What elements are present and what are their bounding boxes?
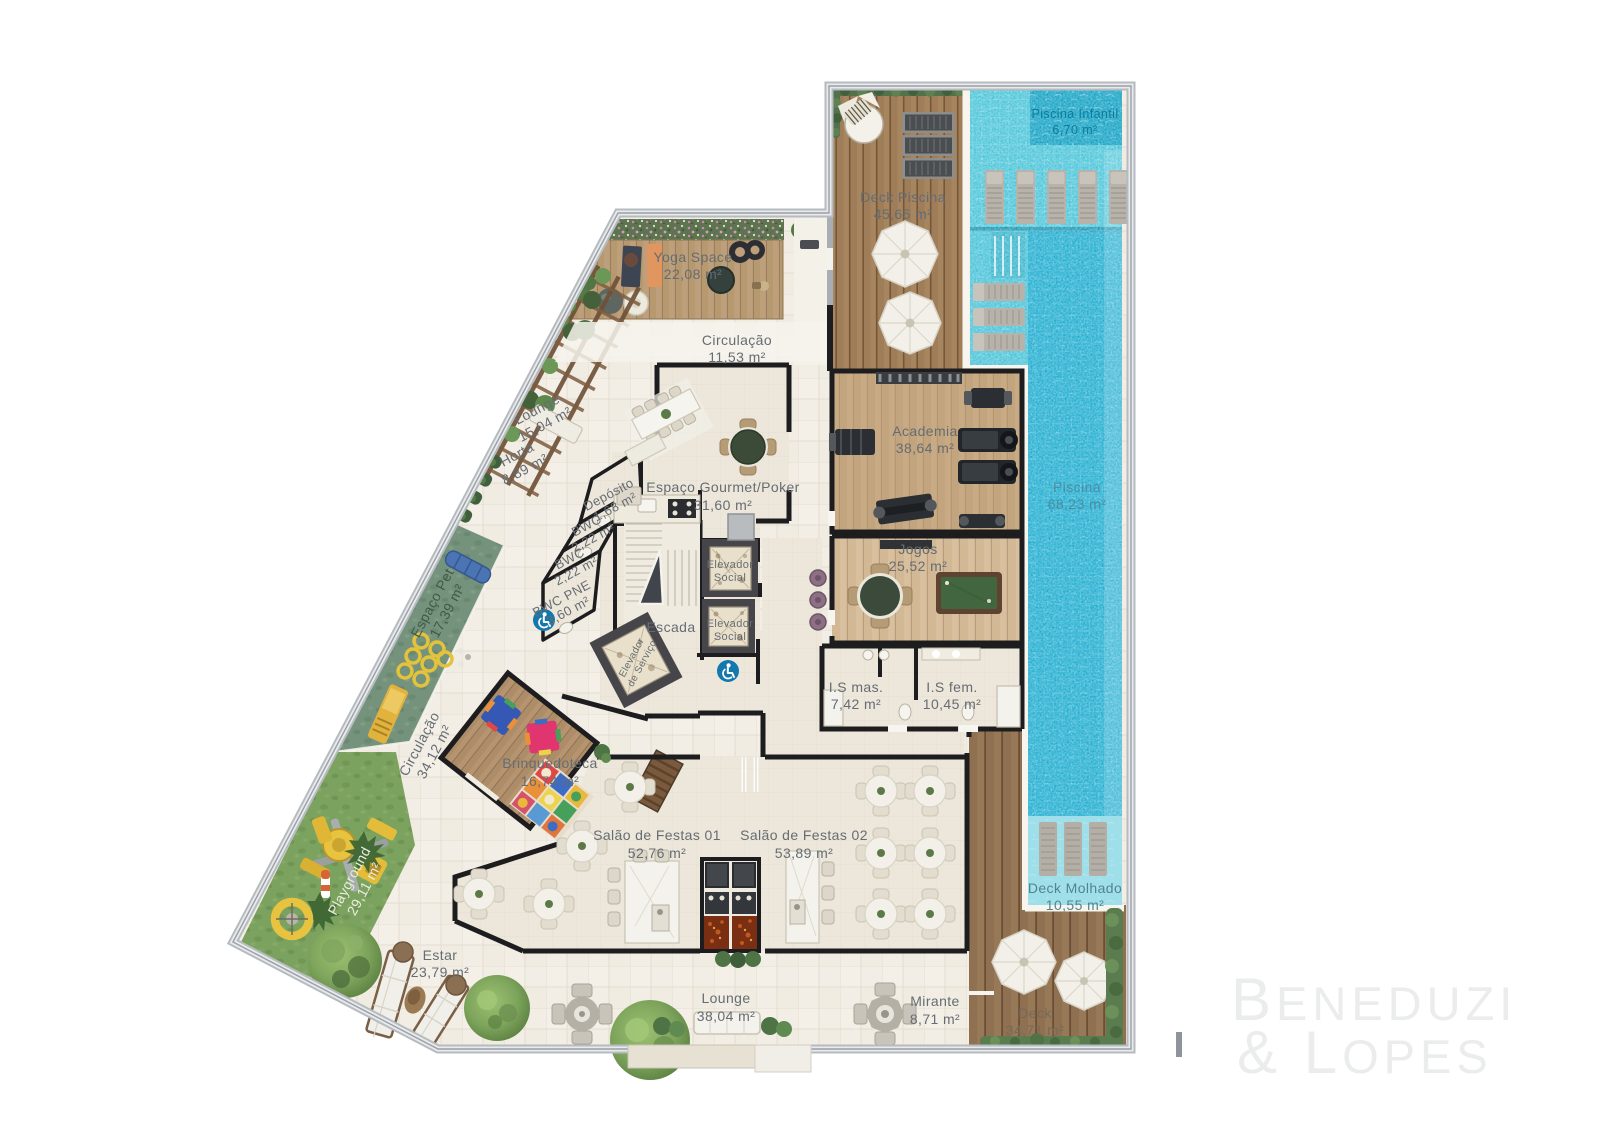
- svg-text:7,42 m²: 7,42 m²: [831, 696, 881, 712]
- svg-text:52,76 m²: 52,76 m²: [628, 845, 686, 861]
- svg-text:10,55 m²: 10,55 m²: [1046, 897, 1104, 913]
- svg-text:53,89 m²: 53,89 m²: [775, 845, 833, 861]
- svg-text:Estar: Estar: [423, 947, 458, 963]
- svg-text:68,23 m²: 68,23 m²: [1048, 496, 1106, 512]
- svg-text:10,45 m²: 10,45 m²: [923, 696, 981, 712]
- svg-text:34,71 m²: 34,71 m²: [1006, 1022, 1064, 1038]
- svg-text:16,74 m²: 16,74 m²: [521, 773, 579, 789]
- svg-text:Elevador: Elevador: [707, 559, 754, 571]
- svg-text:22,08 m²: 22,08 m²: [664, 266, 722, 282]
- svg-text:Social: Social: [714, 631, 746, 643]
- svg-text:Elevador: Elevador: [707, 618, 754, 630]
- svg-text:Salão de Festas 01: Salão de Festas 01: [593, 827, 721, 843]
- svg-text:Escada: Escada: [646, 619, 695, 635]
- svg-text:Mirante: Mirante: [910, 993, 959, 1009]
- svg-text:45,65 m²: 45,65 m²: [874, 206, 932, 222]
- svg-text:31,60 m²: 31,60 m²: [694, 497, 752, 513]
- svg-text:Deck: Deck: [1018, 1005, 1052, 1021]
- svg-text:Lounge: Lounge: [701, 990, 750, 1006]
- svg-text:Piscina: Piscina: [1053, 479, 1101, 495]
- svg-text:I.S mas.: I.S mas.: [829, 679, 884, 695]
- svg-text:Social: Social: [714, 572, 746, 584]
- svg-text:I.S fem.: I.S fem.: [926, 679, 977, 695]
- svg-text:23,79 m²: 23,79 m²: [411, 964, 469, 980]
- svg-text:Salão de Festas 02: Salão de Festas 02: [740, 827, 868, 843]
- svg-text:11,53 m²: 11,53 m²: [708, 349, 765, 365]
- svg-text:Piscina Infantil: Piscina Infantil: [1032, 107, 1119, 121]
- svg-text:8,71 m²: 8,71 m²: [910, 1011, 960, 1027]
- svg-text:Deck Piscina: Deck Piscina: [860, 189, 946, 205]
- svg-text:Academia: Academia: [892, 423, 957, 439]
- svg-text:Espaço Gourmet/Poker: Espaço Gourmet/Poker: [646, 479, 800, 495]
- svg-text:25,52 m²: 25,52 m²: [889, 558, 947, 574]
- svg-text:Yoga Space: Yoga Space: [654, 249, 733, 265]
- svg-text:38,04 m²: 38,04 m²: [697, 1008, 755, 1024]
- svg-text:& LOPES: & LOPES: [1237, 1019, 1493, 1086]
- svg-text:Circulação: Circulação: [702, 332, 772, 348]
- svg-text:Deck Molhado: Deck Molhado: [1028, 880, 1122, 896]
- svg-text:Jogos: Jogos: [898, 541, 937, 557]
- svg-text:38,64 m²: 38,64 m²: [896, 440, 954, 456]
- svg-text:Brinquedoteca: Brinquedoteca: [502, 755, 598, 771]
- svg-text:6,70 m²: 6,70 m²: [1052, 123, 1097, 137]
